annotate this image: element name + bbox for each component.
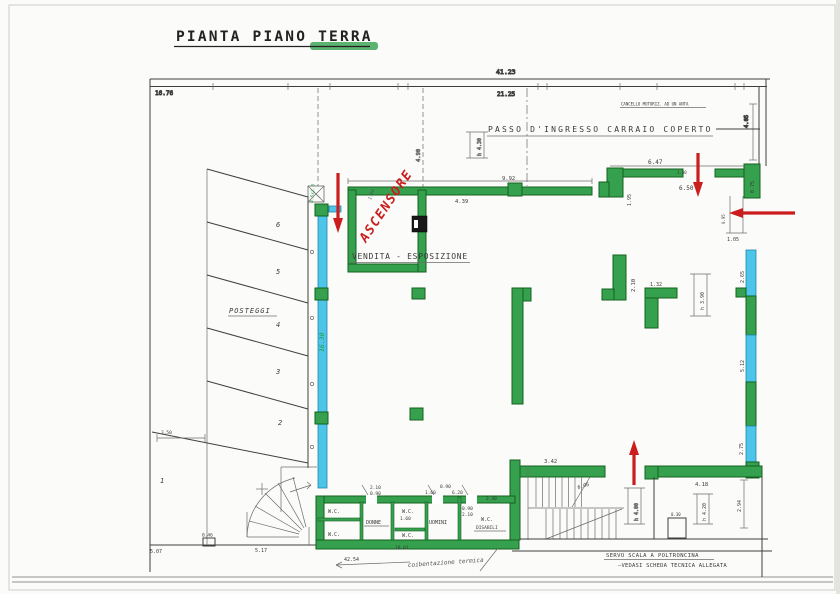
- pillar: [410, 408, 423, 420]
- dim-606: 6.06: [577, 482, 590, 491]
- red-arrows: [333, 153, 795, 485]
- stall-number-3: 3: [275, 368, 280, 376]
- room-wc-disabili: W.C.: [481, 517, 493, 523]
- wc-dim-d: 6.20: [452, 490, 463, 496]
- pillar: [315, 412, 328, 424]
- floor-plan-scan: PIANTA PIANO TERRA 41.23 21.25 16.76 4.0…: [0, 0, 840, 594]
- dim-4254: 42.54: [344, 557, 359, 563]
- entrance-arrow-right-side: [729, 208, 795, 218]
- pillar: [613, 255, 626, 300]
- wc-dim-c: 0.90: [440, 484, 451, 490]
- servo-scala-note: SERVO SCALA A POLTRONCINA —VEDASI SCHEDA…: [604, 553, 727, 569]
- servo-note-line2: —VEDASI SCHEDA TECNICA ALLEGATA: [618, 563, 727, 569]
- room-uomini: UOMINI: [429, 520, 447, 526]
- dim-030: 0.30: [671, 512, 681, 517]
- right-wall: 2.65 5.12 2.75: [736, 250, 759, 478]
- site-boundary: 41.23 21.25 16.76 4.05: [12, 68, 833, 582]
- dim-265: 2.65: [740, 271, 746, 283]
- pillar: [315, 204, 328, 216]
- dim-left-top: 16.76: [155, 90, 173, 97]
- dim-992: 9.92: [502, 176, 515, 182]
- curved-stair: [203, 467, 317, 546]
- passo-ingresso-label: PASSO D'INGRESSO CARRAIO COPERTO: [488, 125, 713, 134]
- room-wc-2: W.C.: [328, 532, 340, 538]
- dim-132: 1.32: [650, 282, 662, 288]
- dim-210: 2.10: [631, 279, 637, 292]
- dim-275: 2.75: [739, 443, 745, 455]
- pillar: [412, 288, 425, 299]
- dim-439: 4.39: [455, 199, 468, 205]
- interior-wall: [512, 288, 523, 404]
- dim-1001: 10.01: [395, 545, 409, 551]
- dim-647: 6.47: [648, 159, 663, 166]
- pillar: [645, 466, 658, 479]
- stall-number-2: 2: [278, 419, 282, 427]
- wc-dim-e: 1.60: [425, 490, 436, 496]
- pillar: [508, 183, 522, 196]
- dim-105: 1.05: [727, 237, 739, 243]
- sales-floor: VENDITA - ESPOSIZIONE: [350, 252, 470, 263]
- coibentazione-note: coibentazione termica: [408, 557, 485, 569]
- stall-number-4: 4: [276, 321, 280, 329]
- entrance-arrow-left-top: [333, 173, 343, 233]
- dim-075: 0.75: [750, 181, 756, 193]
- dim-350: 3.50: [161, 430, 172, 436]
- room-wc-1: W.C.: [328, 509, 340, 515]
- gate-note-text: CANCELLO MOTORIZ. AD UN ANTA: [621, 102, 689, 107]
- bottom-wall: 3.42 6.06: [510, 459, 762, 540]
- dim-095: 0.95: [721, 214, 726, 224]
- entrance-annotations: PASSO D'INGRESSO CARRAIO COPERTO CANCELL…: [487, 102, 760, 137]
- wc-dim-f: 2.40: [486, 496, 497, 502]
- room-wc-4: W.C.: [402, 533, 414, 539]
- wc-dim-i: 2.10: [462, 512, 473, 518]
- dim-gate-height: 4.05: [744, 115, 750, 128]
- posteggi-label: POSTEGGI: [229, 307, 271, 315]
- stall-number-6: 6: [276, 221, 280, 229]
- dim-h390: h 3.90: [700, 292, 706, 310]
- page-title: PIANTA PIANO TERRA: [176, 29, 373, 45]
- dim-294: 2.94: [737, 500, 743, 512]
- dim-342: 3.42: [544, 459, 557, 465]
- wc-dim-g: 1.60: [400, 516, 411, 522]
- left-wall: 16.30 0.6x2.0: [308, 183, 341, 488]
- dim-drive-width: 4.90: [416, 149, 422, 162]
- room-disabili-label: DISABILI: [476, 525, 498, 531]
- exit-arrow-bottom: [629, 440, 639, 485]
- pillar: [315, 288, 328, 300]
- column-size-note: 0.6x2.0: [309, 183, 317, 203]
- dim-h400: h 4.00: [634, 503, 640, 521]
- vendita-label: VENDITA - ESPOSIZIONE: [352, 252, 468, 261]
- wc-dim-h: 0.90: [462, 506, 473, 512]
- dim-top-total: 41.23: [496, 68, 516, 76]
- dim-h420: h 4.20: [702, 503, 708, 521]
- stall-number-5: 5: [276, 268, 280, 276]
- stall-number-1: 1: [160, 477, 164, 485]
- wc-dim-a: 2.10: [370, 485, 381, 491]
- ascensore-label: ASCENSORE: [356, 167, 416, 246]
- dim-046: 0.46: [202, 533, 213, 539]
- wc-block: W.C. W.C. DONNE W.C. W.C. UOMINI W.C. DI…: [316, 484, 519, 551]
- entrance-arrow-top-right: [693, 153, 703, 197]
- dim-195: 1.95: [627, 194, 633, 206]
- dim-150: 1.50: [677, 170, 687, 175]
- dim-418: 4.18: [695, 482, 708, 488]
- dim-650: 6.50: [679, 185, 694, 192]
- entry-walls: 6.47 6.50 1.50 1.95 0.75 1.05 0.95: [599, 159, 760, 243]
- room-donne: DONNE: [366, 520, 381, 526]
- dim-507: 5.07: [150, 549, 162, 555]
- wc-dim-b: 0.90: [370, 491, 381, 497]
- dim-517: 5.17: [255, 548, 267, 554]
- bottom-right-room: 0.30 4.18 h 4.20 2.94: [512, 477, 772, 577]
- parking-area: 6 5 4 3 2 1 POSTEGGI 3.50: [152, 169, 308, 545]
- plan-canvas: PIANTA PIANO TERRA 41.23 21.25 16.76 4.0…: [0, 0, 840, 594]
- dim-512: 5.12: [740, 360, 746, 372]
- drawing-title: PIANTA PIANO TERRA: [174, 29, 378, 50]
- dim-1630-handwritten: 16.30: [318, 332, 326, 352]
- servo-note-line1: SERVO SCALA A POLTRONCINA: [606, 553, 699, 559]
- pillar: [645, 288, 677, 298]
- dim-top-partial: 21.25: [497, 91, 515, 98]
- room-wc-3: W.C.: [402, 509, 414, 515]
- dim-h430: h 4.30: [477, 138, 483, 156]
- interior-pillars: 2.10 1.32 h 3.90: [410, 255, 711, 420]
